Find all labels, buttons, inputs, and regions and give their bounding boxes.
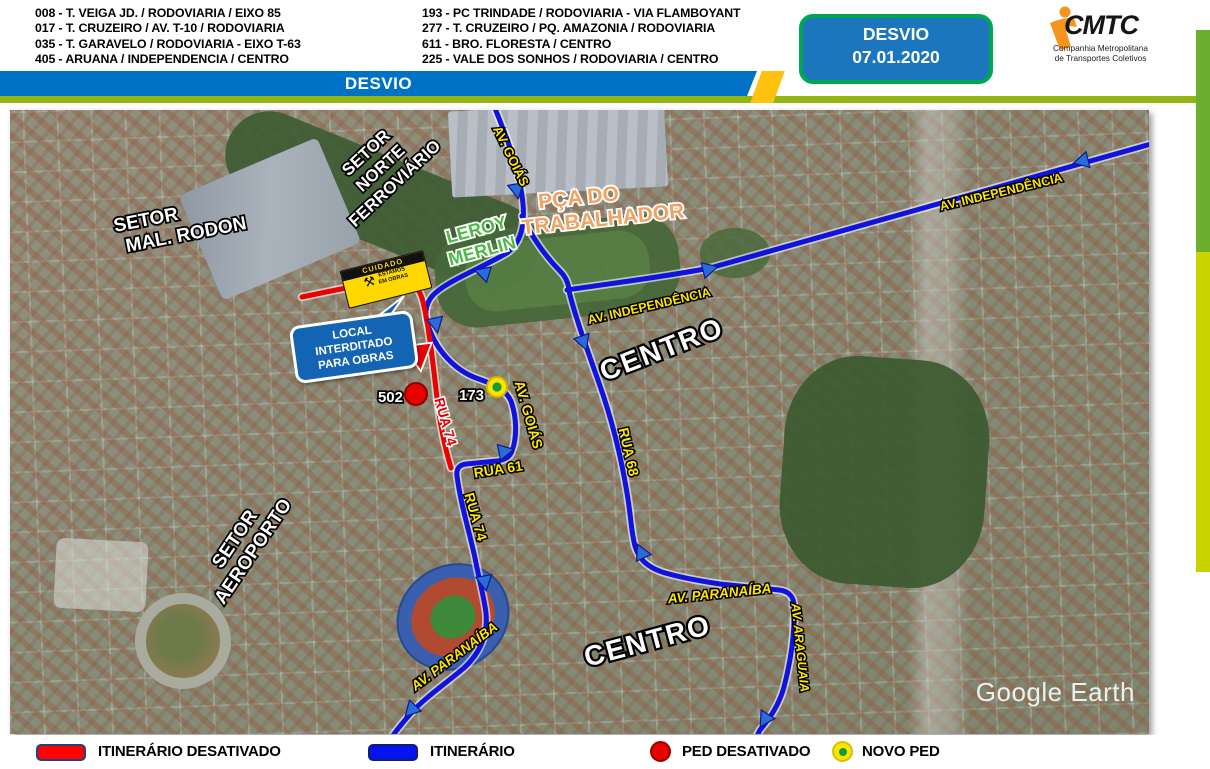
side-bar-lime <box>1196 252 1210 572</box>
cmtc-subtitle: Companhia Metropolitana de Transportes C… <box>1038 44 1163 63</box>
stop-number-label: 502 <box>378 389 403 406</box>
legend-label-deactivated-stop: PED DESATIVADO <box>682 743 810 760</box>
route-casing <box>391 110 523 734</box>
banner-title: DESVIO <box>345 74 412 94</box>
google-earth-watermark: Google Earth <box>976 677 1135 708</box>
route-item: 017 - T. CRUZEIRO / AV. T-10 / RODOVIARI… <box>35 21 301 36</box>
label-setor-mal-rodon: SETOR MAL. RODON <box>112 191 248 258</box>
stop-number-label: 173 <box>459 387 484 404</box>
label-setor-aeroporto: SETOR AEROPORTO <box>192 483 296 608</box>
detour-notice-page: 008 - T. VEIGA JD. / RODOVIARIA / EIXO 8… <box>0 0 1210 769</box>
route-item: 405 - ARUANA / INDEPENDENCIA / CENTRO <box>35 52 301 67</box>
cmtc-wordmark: CMTC <box>1064 10 1138 41</box>
legend-label-new-stop: NOVO PED <box>862 743 940 760</box>
worker-icon: ⚒ <box>362 274 376 289</box>
legend-label-deactivated-route: ITINERÁRIO DESATIVADO <box>98 743 281 760</box>
route-item: 193 - PC TRINDADE / RODOVIARIA - VIA FLA… <box>422 6 740 21</box>
label-av-independencia-topright: AV. INDEPENDÊNCIA <box>938 170 1064 214</box>
label-setor-norte-ferroviario: SETOR NORTE FERROVIÁRIO <box>316 110 444 231</box>
cmtc-logo: CMTC Companhia Metropolitana de Transpor… <box>1038 4 1163 66</box>
legend-swatch-deactivated-route <box>36 744 86 761</box>
label-leroy-merlin: LEROY MERLIN <box>440 211 518 269</box>
route-item: 611 - BRO. FLORESTA / CENTRO <box>422 37 740 52</box>
label-rua-74-deactivated: RUA 74 <box>431 396 460 448</box>
ped-new-marker-core <box>492 382 501 391</box>
route-list-left: 008 - T. VEIGA JD. / RODOVIARIA / EIXO 8… <box>35 6 301 68</box>
route-item: 225 - VALE DOS SONHOS / RODOVIARIA / CEN… <box>422 52 740 67</box>
legend: ITINERÁRIO DESATIVADO ITINERÁRIO PED DES… <box>0 735 1210 769</box>
route-item: 277 - T. CRUZEIRO / PQ. AMAZONIA / RODOV… <box>422 21 740 36</box>
route-overlay: 502 173 SETOR MAL. RODON SETOR NORTE FER… <box>10 110 1149 734</box>
legend-swatch-route <box>368 744 418 761</box>
cmtc-subtitle-line2: de Transportes Coletivos <box>1038 54 1163 64</box>
route-item: 035 - T. GARAVELO / RODOVIARIA - EIXO T-… <box>35 37 301 52</box>
legend-label-route: ITINERÁRIO <box>430 743 515 760</box>
ped-deactivated-marker <box>405 383 427 405</box>
route-list-right: 193 - PC TRINDADE / RODOVIARIA - VIA FLA… <box>422 6 740 68</box>
label-centro-south: CENTRO <box>581 609 715 673</box>
label-av-goias-top: AV. GOIÁS <box>490 124 532 189</box>
desvio-banner: DESVIO <box>0 71 757 96</box>
legend-marker-new-stop <box>832 741 853 762</box>
badge-date: 07.01.2020 <box>803 46 989 69</box>
side-bar-green <box>1196 30 1210 252</box>
route-item: 008 - T. VEIGA JD. / RODOVIARIA / EIXO 8… <box>35 6 301 21</box>
green-divider-bar <box>0 96 1210 103</box>
label-av-paranaiba-west: AV. PARANAÍBA <box>407 619 500 694</box>
active-route-goias-rua74 <box>391 110 523 734</box>
label-centro-north: CENTRO <box>595 311 728 387</box>
satellite-map: 502 173 SETOR MAL. RODON SETOR NORTE FER… <box>10 110 1149 734</box>
badge-title: DESVIO <box>803 23 989 46</box>
legend-marker-deactivated-stop <box>650 741 671 762</box>
label-praca-trabalhador: PÇA DO TRABALHADOR <box>518 176 685 240</box>
desvio-date-badge: DESVIO 07.01.2020 <box>799 14 993 84</box>
